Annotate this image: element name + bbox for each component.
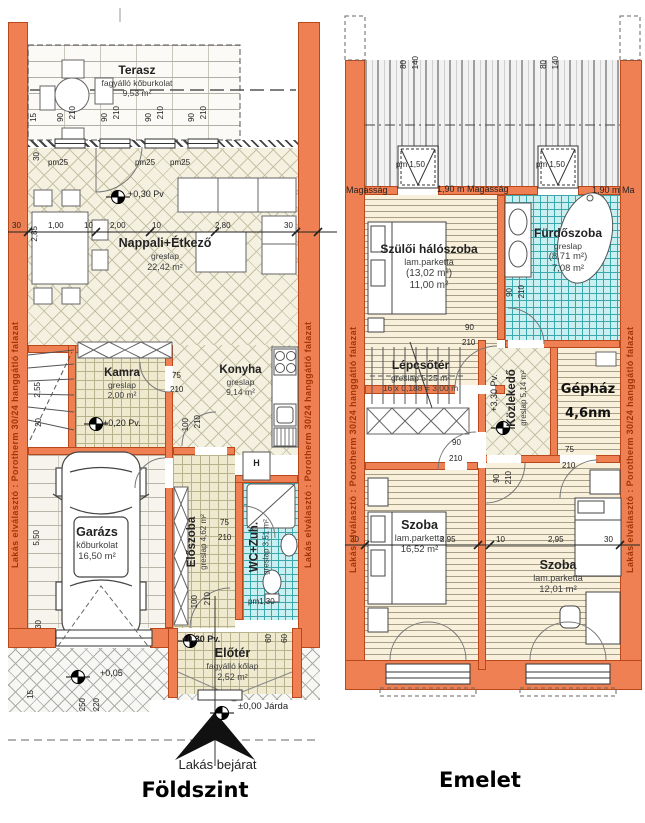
room-finish-area: greslap 4,62 m²	[199, 482, 208, 602]
room-finish: greslap	[262, 549, 271, 575]
door-opening	[445, 462, 467, 470]
parapet-label: pm 1,50	[536, 160, 565, 169]
room-label-lepcso: Lépcsőtér greslap 5,25 m² 16 x 0,188 = 3…	[368, 358, 473, 393]
height-label: 1,90 m Magasság	[437, 184, 509, 194]
dim: 210	[156, 106, 165, 119]
room-area: 2,52 m²	[175, 672, 290, 683]
room-finish: greslap	[199, 544, 208, 570]
dim: 100	[181, 418, 190, 431]
dim: 30	[12, 221, 21, 230]
room-area-gross: (8,71 m²)	[518, 251, 618, 263]
room-area: 9,53 m²	[67, 88, 207, 98]
room-label-gephaz: Gépház 4,6nm	[548, 382, 628, 422]
room-finish: greslap	[198, 377, 283, 387]
room-area: 11,00 m²	[370, 280, 488, 292]
room-area: 7,08 m²	[518, 263, 618, 275]
fridge-label: H	[247, 458, 266, 468]
dim: 10	[84, 221, 93, 230]
wall-interior	[235, 480, 243, 620]
room-area: 16,52 m²	[372, 544, 467, 556]
room-name: Garázs	[52, 525, 142, 540]
room-area: 3,51 m²	[262, 519, 271, 546]
plan-title-emelet: Emelet	[405, 768, 555, 792]
room-finish: greslap	[519, 400, 528, 426]
dim: 15	[26, 690, 35, 699]
room-name: Lépcsőtér	[368, 358, 473, 373]
plan-title-foldszint: Földszint	[110, 778, 280, 802]
room-area: 4,6nm	[548, 406, 628, 422]
dim: 30	[284, 221, 293, 230]
dim: 100	[190, 595, 199, 608]
dim: 2,55	[33, 382, 42, 398]
room-label-furdo: Fürdőszoba greslap (8,71 m²) 7,08 m²	[518, 226, 618, 274]
room-label-konyha: Konyha greslap 9,14 m²	[198, 363, 283, 398]
dim: 90	[56, 113, 65, 122]
dim: 90	[100, 113, 109, 122]
room-name: Szoba	[372, 518, 467, 533]
dim: 2,00	[110, 221, 126, 230]
dim: 220	[92, 698, 101, 711]
parapet-label: pm 1,50	[396, 160, 425, 169]
dim: 210	[517, 285, 526, 298]
dim: 210	[199, 106, 208, 119]
dim: 60	[264, 634, 273, 643]
dim: 80	[539, 60, 548, 69]
dim: 210	[193, 415, 202, 428]
wall-type-label: Lakás elválasztó : Porotherm 30/24 hangg…	[303, 230, 313, 660]
floorplan-sheet: Terasz fagyálló kőburkolat 9,53 m² pm25 …	[0, 0, 645, 823]
dim: 5,50	[32, 530, 41, 546]
room-name: Szülői hálószoba	[370, 242, 488, 257]
dim: 60	[280, 634, 289, 643]
height-label: 1,90 m Ma	[592, 185, 635, 195]
room-name: Szoba	[512, 558, 604, 573]
dim: 90	[505, 288, 514, 297]
entrance-label: Lakás bejárat	[160, 757, 275, 772]
wall-bottom	[345, 660, 642, 690]
dim: 250	[78, 698, 87, 711]
door-opening	[165, 458, 173, 488]
room-name: Konyha	[198, 363, 283, 377]
room-name: Kamra	[82, 366, 162, 380]
level-label: +3,30 Pv.	[489, 348, 501, 438]
room-label-kozlekedo: Közlekedő greslap 5,14 m²	[506, 338, 542, 458]
dim: 90	[452, 438, 461, 447]
dim: 75	[220, 518, 229, 527]
dim: 2,80	[215, 221, 231, 230]
room-name: Közlekedő	[506, 338, 519, 458]
dim: 210	[203, 592, 212, 605]
room-finish-area: greslap 3,51 m²	[262, 490, 271, 605]
parapet-label: pm25	[170, 158, 190, 167]
stairs-floor-up	[365, 394, 478, 462]
room-finish: lam.parketta	[512, 573, 604, 584]
dim: 140	[551, 56, 560, 69]
insulation-strip	[28, 140, 298, 147]
room-finish: fagyálló kőburkolat	[67, 78, 207, 88]
room-finish: greslap	[518, 241, 618, 251]
parapet-label: pm25	[135, 158, 155, 167]
dim: 20	[34, 418, 43, 427]
dim: 90	[144, 113, 153, 122]
level-label: +0,30 Pv.	[182, 634, 220, 644]
wall-interior	[28, 345, 173, 353]
room-name: WC+Zuh.	[249, 490, 262, 605]
wall-type-label: Lakás elválasztó : Porotherm 30/24 hangg…	[625, 240, 635, 660]
room-name: Nappali+Étkező	[100, 236, 230, 251]
room-area: 16,50 m²	[52, 551, 142, 563]
room-label-szuloi: Szülői hálószoba lam.parketta (13,02 m²)…	[370, 242, 488, 292]
dim: 90	[465, 323, 474, 332]
dim: 210	[449, 454, 462, 463]
room-area: 5,14 m²	[519, 370, 528, 397]
room-label-szoba2: Szoba lam.parketta 12,01 m²	[512, 558, 604, 596]
dim: 10	[152, 221, 161, 230]
dim: 210	[462, 338, 475, 347]
room-area-gross: (13,02 m²)	[370, 268, 488, 280]
room-name: Terasz	[67, 63, 207, 78]
bedroom1-floor	[365, 470, 478, 660]
dim: 75	[172, 371, 181, 380]
room-finish: greslap 5,25 m²	[368, 373, 473, 383]
level-label: +0,20 Pv.	[103, 418, 141, 428]
wall-interior	[235, 475, 298, 483]
dim: 30	[32, 152, 41, 161]
wall-type-label: Lakás elválasztó : Porotherm 30/24 hangg…	[348, 240, 358, 660]
dim: 2,85	[30, 226, 39, 242]
room-area: 12,01 m²	[512, 584, 604, 596]
room-label-kamra: Kamra greslap 2,00 m²	[82, 366, 162, 401]
dim: 210	[504, 471, 513, 484]
dim: 210	[562, 461, 575, 470]
room-name: Gépház	[548, 382, 628, 398]
room-label-eloter: Előtér fagyálló kőlap 2,52 m²	[175, 646, 290, 683]
room-finish: greslap	[100, 251, 230, 261]
room-finish: kőburkolat	[52, 540, 142, 551]
wall-interior	[68, 345, 76, 455]
room-name: Előtér	[175, 646, 290, 661]
level-label: +0,30 Pv	[128, 189, 164, 199]
dim: 80	[399, 60, 408, 69]
dim: 90	[187, 113, 196, 122]
height-label: Magasság	[346, 185, 388, 195]
room-label-eloszoba: Előszoba greslap 4,62 m²	[186, 482, 220, 602]
parapet-label: pm25	[48, 158, 68, 167]
dim: 2,95	[440, 535, 456, 544]
dim: 210	[112, 106, 121, 119]
door-opening	[195, 447, 227, 455]
dim: 210	[68, 106, 77, 119]
level-label: ±0,00 Járda	[238, 701, 288, 712]
dim: 1,00	[48, 221, 64, 230]
room-name: Előszoba	[186, 482, 199, 602]
room-area: 22,42 m²	[100, 262, 230, 273]
room-name: Fürdőszoba	[518, 226, 618, 241]
stairs-formula: 16 x 0,188 = 3,00 m	[368, 383, 473, 393]
dim: 210	[170, 385, 183, 394]
dim: 30	[34, 620, 43, 629]
room-area: 2,00 m²	[82, 390, 162, 400]
level-label: +0,05	[100, 668, 123, 678]
room-finish: fagyálló kőlap	[175, 661, 290, 671]
room-finish: greslap	[82, 380, 162, 390]
room-label-wc: WC+Zuh. greslap 3,51 m²	[249, 490, 283, 605]
room-area: 4,62 m²	[199, 514, 208, 541]
room-label-terasz: Terasz fagyálló kőburkolat 9,53 m²	[67, 63, 207, 98]
wall-interior	[497, 195, 505, 340]
dim: 140	[411, 56, 420, 69]
dim: 2,95	[548, 535, 564, 544]
parapet-label: pm1,30	[248, 597, 275, 606]
room-label-nappali: Nappali+Étkező greslap 22,42 m²	[100, 236, 230, 273]
room-label-garazs: Garázs kőburkolat 16,50 m²	[52, 525, 142, 563]
wall-interior	[28, 447, 168, 455]
wall-bottom	[150, 628, 170, 648]
dim: 30	[604, 535, 613, 544]
dim: 10	[496, 535, 505, 544]
door-opening	[478, 432, 486, 468]
wall-type-label: Lakás elválasztó : Porotherm 30/24 hangg…	[10, 230, 20, 660]
dim: 15	[29, 113, 38, 122]
porch-wall	[292, 628, 302, 698]
room-finish-area: greslap 5,14 m²	[519, 338, 528, 458]
room-finish: lam.parketta	[370, 257, 488, 268]
dim: 90	[492, 474, 501, 483]
dim: 75	[565, 445, 574, 454]
kitchen-floor	[173, 345, 298, 455]
dim: 210	[218, 533, 231, 542]
room-area: 9,14 m²	[198, 387, 283, 397]
